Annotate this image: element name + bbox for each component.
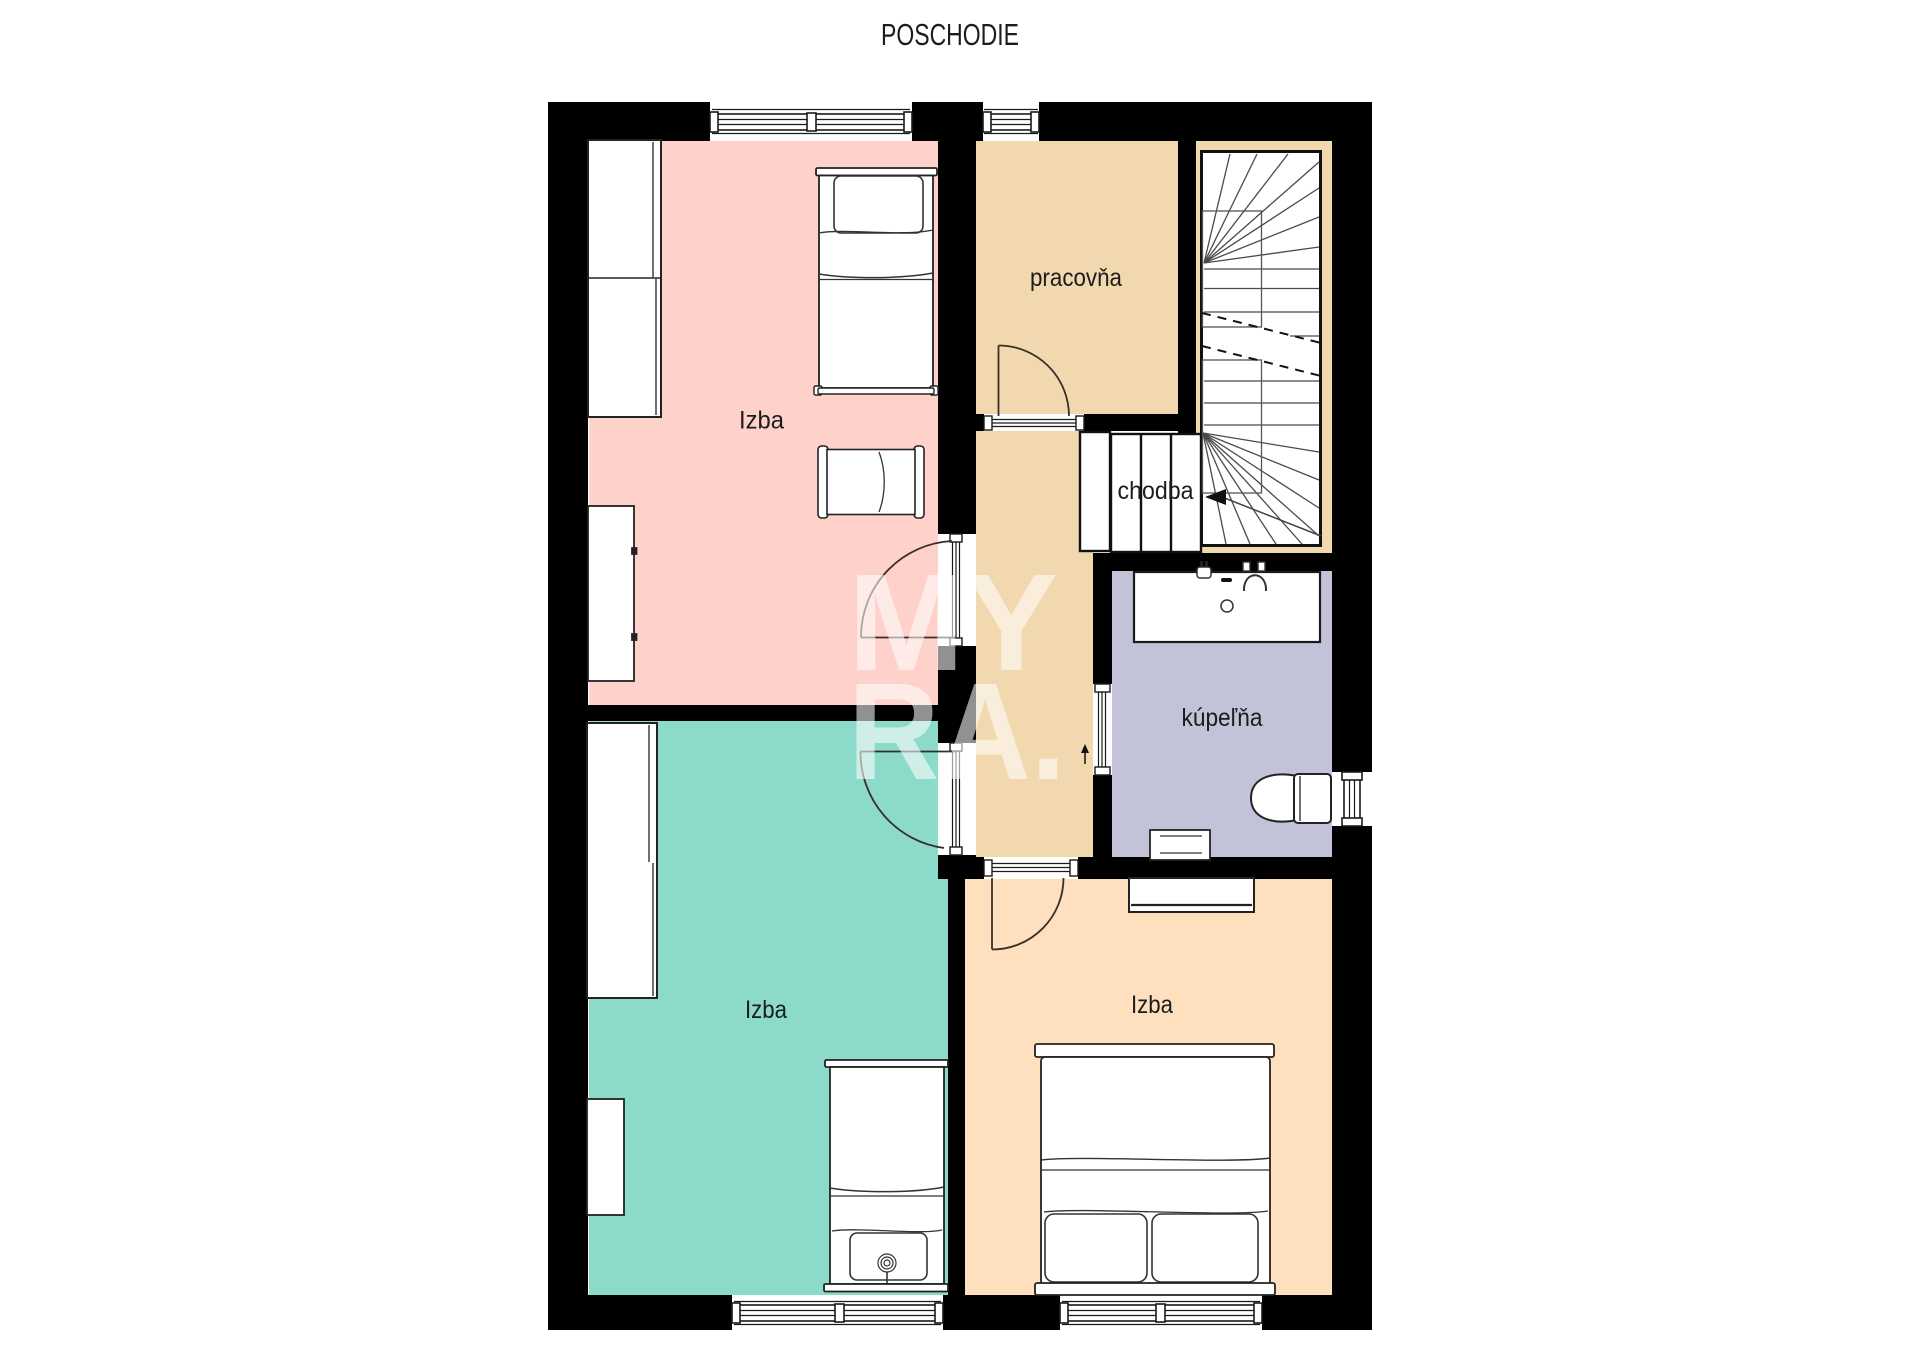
svg-text:kúpeľňa: kúpeľňa: [1182, 704, 1263, 732]
svg-text:POSCHODIE: POSCHODIE: [881, 17, 1019, 52]
svg-text:RA.: RA.: [848, 655, 1066, 809]
svg-text:Izba: Izba: [745, 996, 787, 1024]
svg-text:Izba: Izba: [1131, 991, 1173, 1019]
svg-text:Izba: Izba: [739, 407, 784, 435]
svg-text:chodba: chodba: [1118, 477, 1194, 505]
svg-text:pracovňa: pracovňa: [1030, 264, 1122, 292]
